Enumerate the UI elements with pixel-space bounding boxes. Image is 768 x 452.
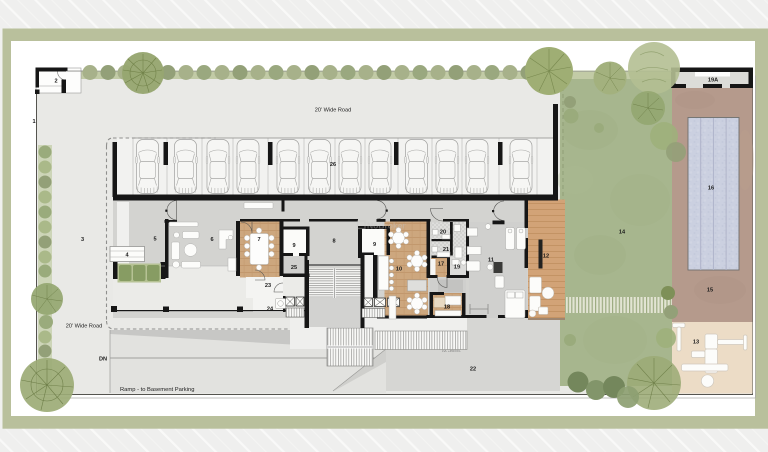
svg-text:NoBroker: NoBroker	[367, 221, 406, 231]
svg-text:21: 21	[443, 247, 449, 253]
svg-text:19A: 19A	[708, 78, 718, 84]
svg-text:19: 19	[454, 265, 460, 271]
svg-text:10: 10	[396, 267, 402, 273]
svg-text:20' Wide Road: 20' Wide Road	[315, 108, 352, 114]
svg-text:2: 2	[54, 79, 57, 85]
svg-text:6: 6	[210, 237, 213, 243]
svg-text:14: 14	[619, 230, 626, 236]
svg-text:17: 17	[438, 262, 444, 268]
svg-text:18: 18	[444, 305, 450, 311]
svg-text:5: 5	[153, 237, 156, 243]
svg-text:15: 15	[707, 288, 713, 294]
svg-text:22: 22	[470, 367, 476, 373]
svg-text:9: 9	[373, 242, 376, 248]
svg-text:9: 9	[292, 243, 295, 249]
svg-text:26: 26	[330, 162, 336, 168]
svg-text:1: 1	[32, 119, 35, 125]
svg-text:DN: DN	[99, 357, 107, 363]
svg-text:8: 8	[332, 239, 335, 245]
svg-text:11: 11	[488, 258, 494, 264]
svg-text:20' Wide Road: 20' Wide Road	[66, 324, 103, 330]
svg-text:24: 24	[267, 307, 274, 313]
svg-text:23: 23	[265, 283, 271, 289]
svg-text:12: 12	[543, 254, 549, 260]
svg-text:13: 13	[693, 340, 699, 346]
svg-text:20: 20	[440, 230, 446, 236]
svg-text:3: 3	[81, 237, 84, 243]
svg-text:LVL +450 FFL: LVL +450 FFL	[442, 349, 461, 353]
svg-text:16: 16	[708, 186, 714, 192]
svg-text:7: 7	[257, 237, 260, 243]
svg-text:25: 25	[291, 265, 297, 271]
svg-text:Ramp - to Basement Parking: Ramp - to Basement Parking	[120, 387, 194, 393]
